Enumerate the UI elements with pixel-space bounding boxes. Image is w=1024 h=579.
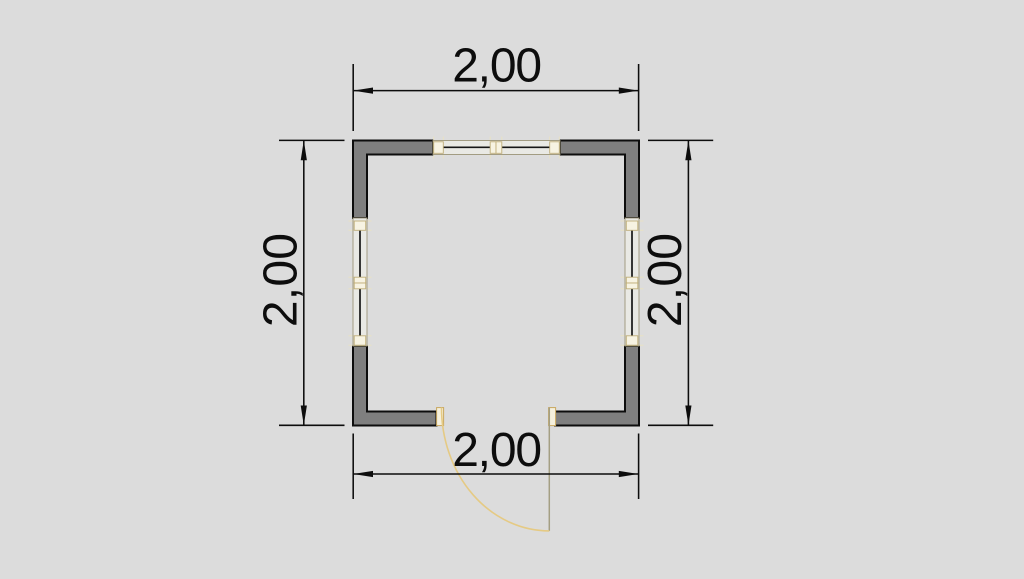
svg-text:2,00: 2,00 xyxy=(452,424,541,477)
svg-text:2,00: 2,00 xyxy=(254,233,307,327)
svg-text:2,00: 2,00 xyxy=(639,233,692,327)
svg-text:2,00: 2,00 xyxy=(452,40,541,93)
